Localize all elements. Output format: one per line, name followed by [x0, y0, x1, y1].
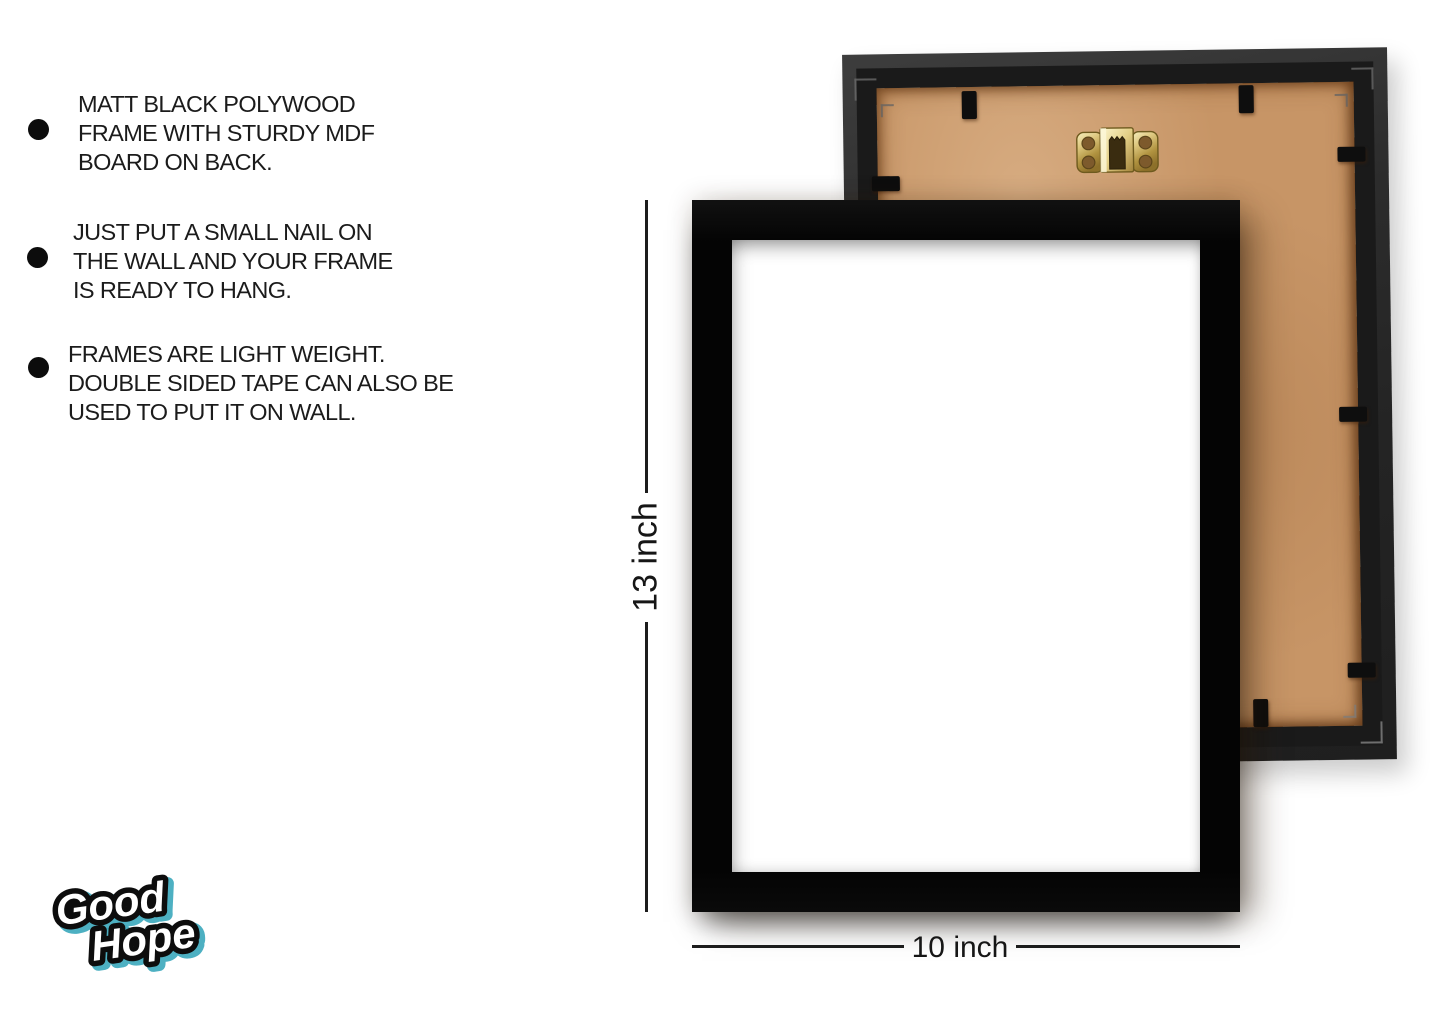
bullet-dot [28, 119, 49, 140]
bullet-dot [28, 357, 49, 378]
feature-line: FRAME WITH STURDY MDF [78, 119, 374, 148]
sawtooth-hanger-icon [1075, 124, 1160, 179]
front-frame [692, 200, 1240, 912]
corner-vnail-mark [1343, 705, 1356, 718]
width-dimension-line [692, 945, 904, 948]
retainer-clip [1337, 147, 1365, 162]
height-dimension-line [645, 200, 648, 493]
corner-vnail-mark [854, 78, 876, 100]
corner-vnail-mark [1360, 721, 1382, 743]
retainer-clip [1339, 407, 1367, 422]
feature-line: JUST PUT A SMALL NAIL ON [73, 218, 393, 247]
feature-line: DOUBLE SIDED TAPE CAN ALSO BE [68, 369, 453, 398]
height-dimension-line [645, 622, 648, 912]
feature-line: FRAMES ARE LIGHT WEIGHT. [68, 340, 453, 369]
feature-line: MATT BLACK POLYWOOD [78, 90, 374, 119]
product-infographic: MATT BLACK POLYWOOD FRAME WITH STURDY MD… [0, 0, 1445, 1025]
feature-line: THE WALL AND YOUR FRAME [73, 247, 393, 276]
retainer-clip [962, 91, 977, 119]
brand-logo: Good Good Hope Hope [46, 868, 206, 976]
retainer-clip [1348, 662, 1376, 677]
width-dimension-line [1016, 945, 1240, 948]
corner-vnail-mark [1335, 94, 1348, 107]
bullet-dot [27, 247, 48, 268]
retainer-clip [1239, 85, 1254, 113]
corner-vnail-mark [1351, 67, 1373, 89]
corner-vnail-mark [881, 104, 894, 117]
feature-line: USED TO PUT IT ON WALL. [68, 398, 453, 427]
retainer-clip [1253, 699, 1268, 727]
height-dimension-label: 13 inch [627, 502, 666, 612]
feature-line: BOARD ON BACK. [78, 148, 374, 177]
width-dimension-label: 10 inch [912, 931, 1009, 965]
frame-opening [732, 240, 1200, 872]
retainer-clip [872, 176, 900, 191]
feature-line: IS READY TO HANG. [73, 276, 393, 305]
